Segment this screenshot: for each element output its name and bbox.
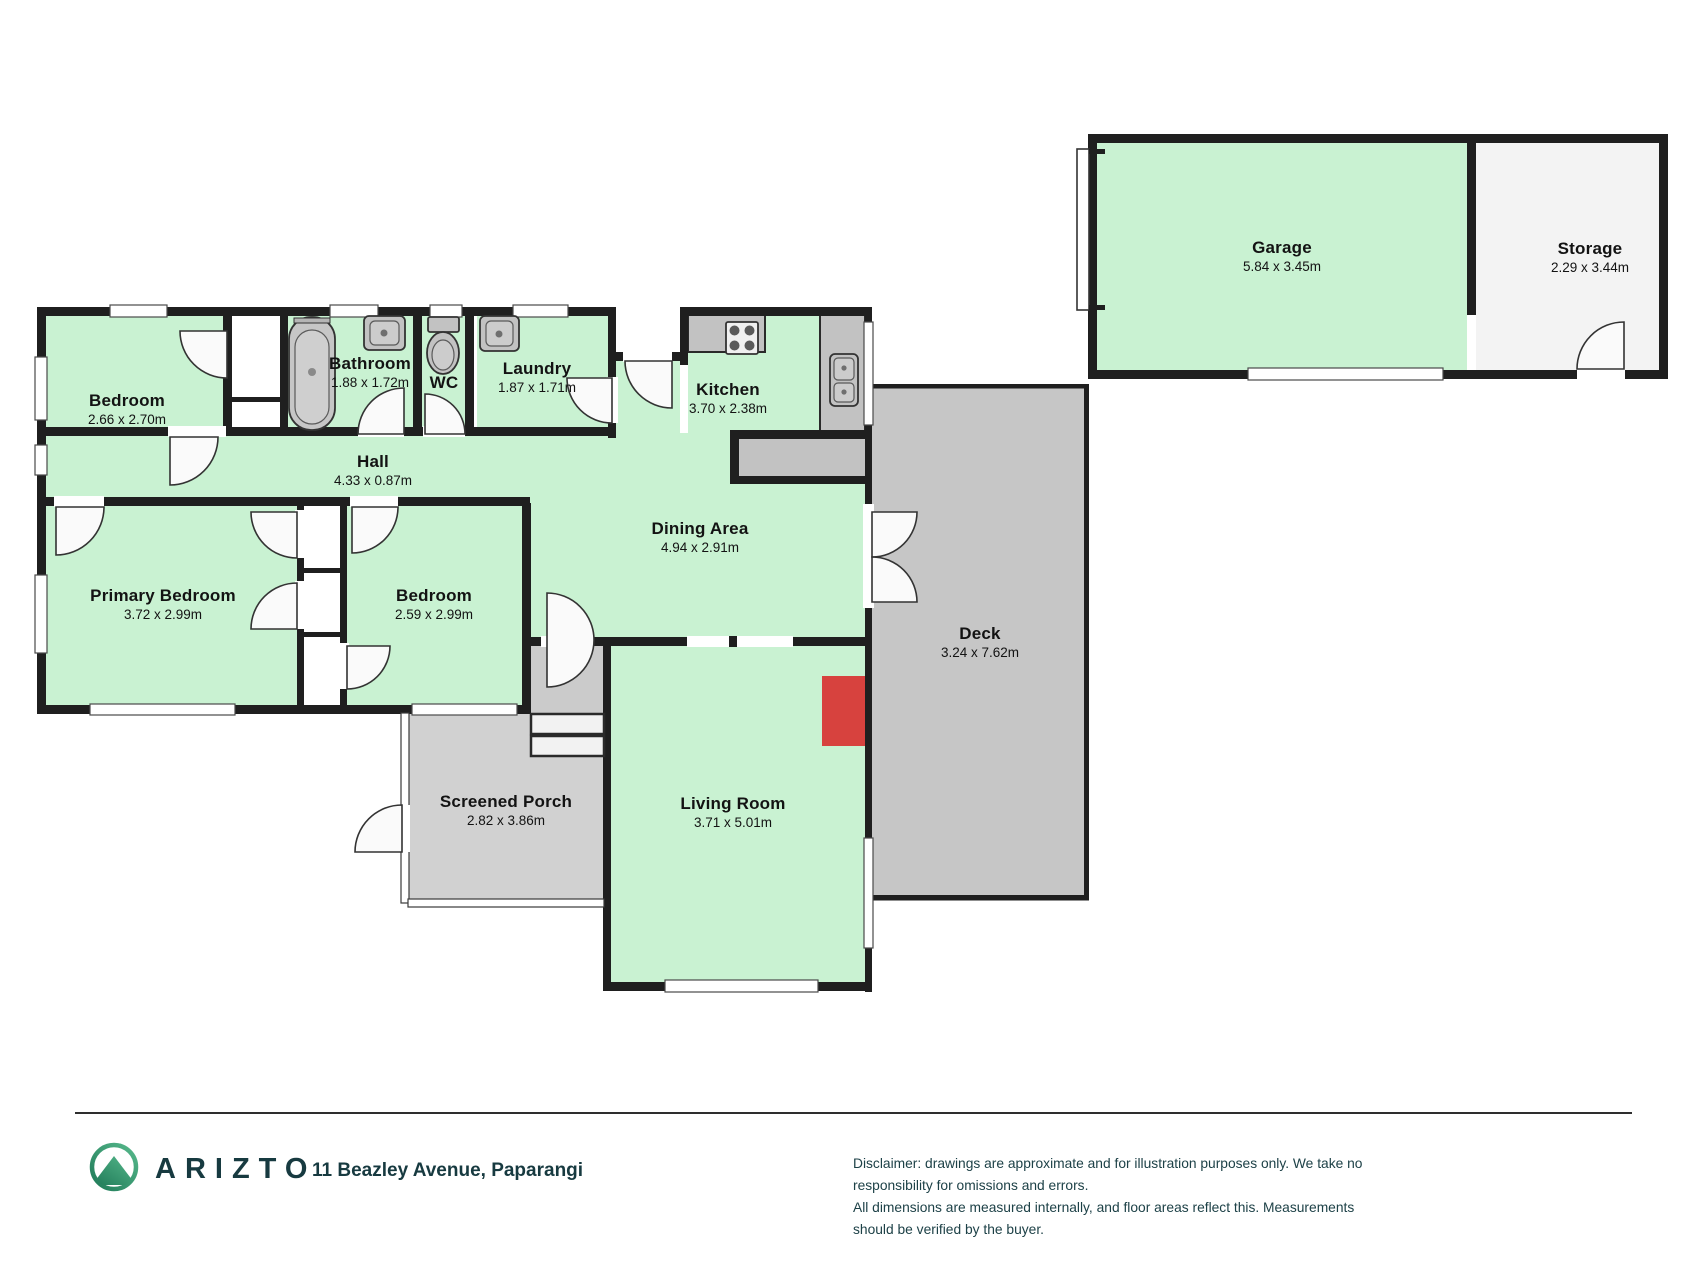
bathroom-sink-icon bbox=[364, 316, 405, 350]
bathtub-icon bbox=[289, 317, 335, 430]
address-text: 11 Beazley Avenue, Paparangi bbox=[312, 1160, 583, 1182]
stove-icon bbox=[726, 322, 758, 354]
arizto-logo-icon bbox=[88, 1141, 140, 1193]
laundry-sink-icon bbox=[480, 316, 519, 351]
room-areas bbox=[45, 143, 1659, 983]
stairs-icon bbox=[531, 714, 604, 756]
deck-area bbox=[872, 388, 1084, 896]
brand-name: ARIZTO bbox=[155, 1153, 316, 1186]
opening-stub bbox=[729, 636, 737, 647]
disclaimer-line-2: All dimensions are measured internally, … bbox=[853, 1197, 1373, 1241]
floorplan-page: Bedroom2.66 x 2.70mBathroom1.88 x 1.72mW… bbox=[0, 0, 1707, 1280]
fireplace-icon bbox=[822, 676, 865, 746]
disclaimer-text: Disclaimer: drawings are approximate and… bbox=[853, 1153, 1373, 1241]
room-storage-area bbox=[1476, 143, 1659, 370]
disclaimer-line-1: Disclaimer: drawings are approximate and… bbox=[853, 1153, 1373, 1197]
floor-plan-drawing bbox=[0, 0, 1707, 1280]
room-hall-area bbox=[45, 433, 530, 499]
toilet-icon bbox=[427, 317, 459, 374]
room-garage-area bbox=[1097, 143, 1467, 370]
kitchen-sink-icon bbox=[830, 354, 858, 406]
porch-door-icon bbox=[355, 805, 402, 852]
footer-divider bbox=[75, 1112, 1632, 1114]
